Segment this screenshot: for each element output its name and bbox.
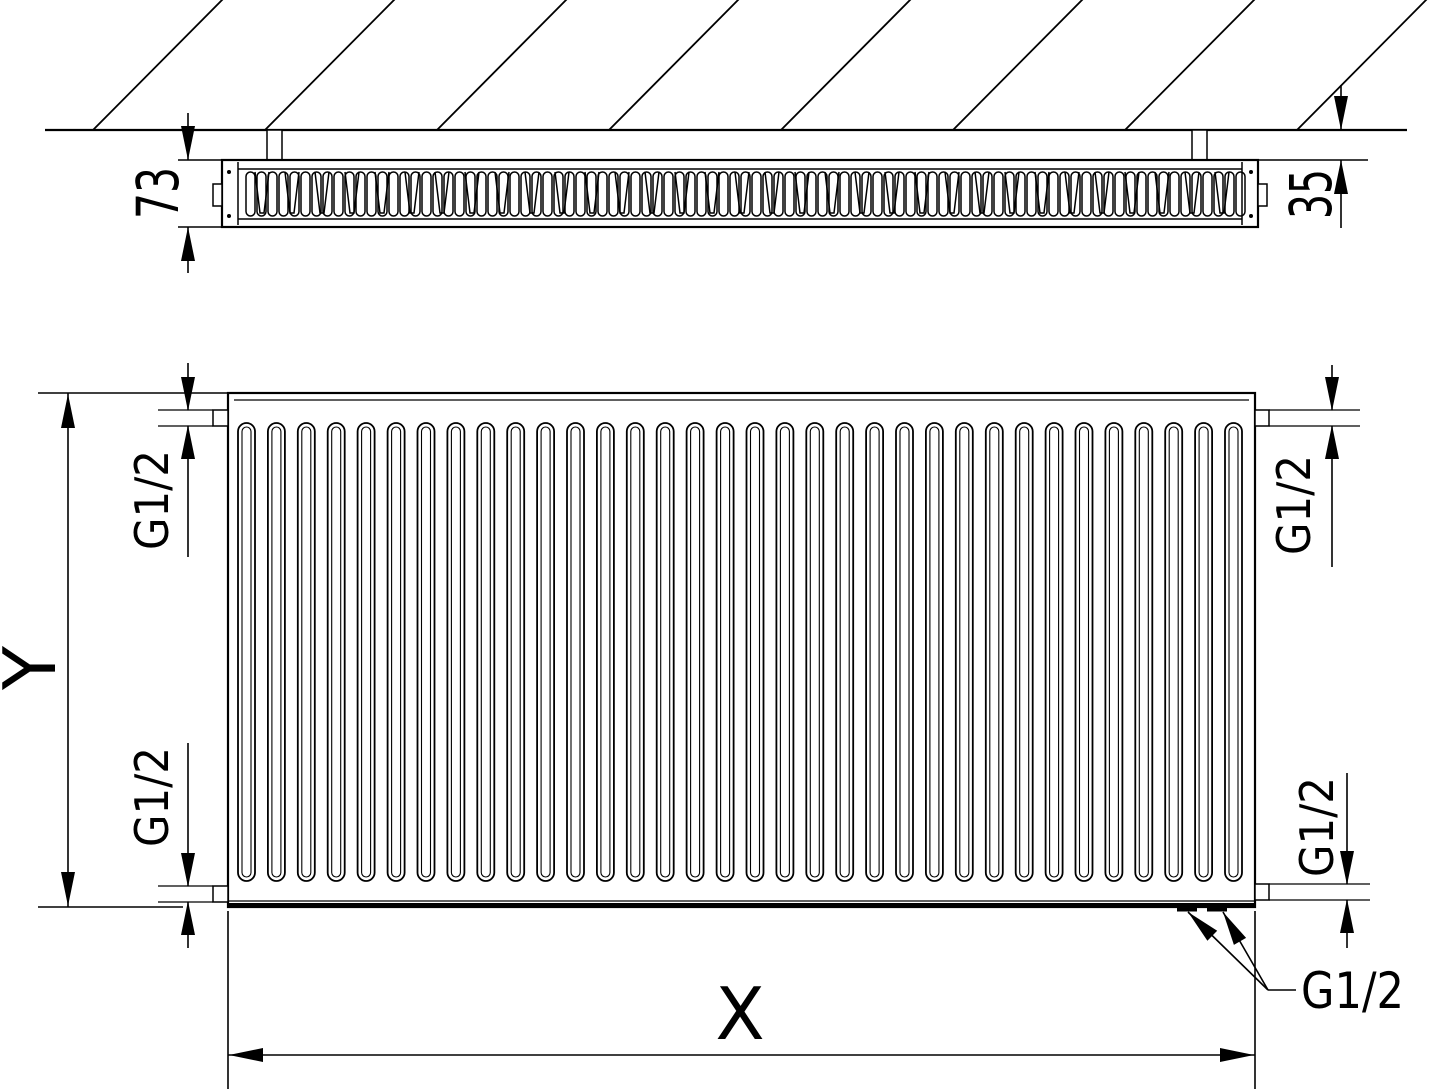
screw-dot xyxy=(227,170,231,174)
dimension-arrow xyxy=(181,425,195,459)
depth-value: 73 xyxy=(124,167,192,219)
dimension-depth: 73 xyxy=(124,113,222,273)
dimension-conn-top-left: G1/2 xyxy=(125,363,188,557)
drawing-canvas: 73 35 Y xyxy=(0,0,1429,1091)
conn-bottom-right-value: G1/2 xyxy=(1290,777,1344,877)
width-value: X xyxy=(715,972,764,1056)
top-view xyxy=(213,130,1267,227)
screw-dot xyxy=(1249,214,1253,218)
conn-leader-value: G1/2 xyxy=(1301,962,1404,1020)
wall-hatch-line xyxy=(953,0,1084,130)
stub-bottom-right xyxy=(1255,884,1269,900)
wall-hatch-line xyxy=(1297,0,1428,130)
dimension-conn-top-right: G1/2 xyxy=(1267,365,1332,567)
stub-top-right xyxy=(1255,410,1269,426)
wall-hatch-line xyxy=(781,0,912,130)
wall-bracket-left xyxy=(267,130,282,162)
dimension-arrow xyxy=(1325,377,1339,411)
top-view-right-plug xyxy=(1258,184,1267,206)
wall-hatch-line xyxy=(437,0,568,130)
dimension-arrow xyxy=(1220,1048,1254,1062)
dimension-arrow xyxy=(61,872,75,906)
dimension-height: Y xyxy=(0,393,233,907)
dimension-wall-gap: 35 xyxy=(1258,85,1368,228)
dimension-width: X xyxy=(228,911,1255,1089)
dimension-arrow xyxy=(1340,899,1354,933)
stub-top-left xyxy=(213,410,228,426)
dimension-arrow xyxy=(181,227,195,261)
front-view-body xyxy=(228,393,1255,907)
dimension-arrow xyxy=(1334,96,1348,130)
wall-hatch-line xyxy=(265,0,396,130)
wall-hatch-line xyxy=(93,0,224,130)
dimension-conn-bottom-left: G1/2 xyxy=(125,743,188,948)
leader-conn-bottom: G1/2 xyxy=(1188,912,1404,1020)
height-value: Y xyxy=(0,645,72,691)
dimension-arrow xyxy=(1223,912,1246,945)
dimension-conn-bottom-right: G1/2 xyxy=(1290,773,1347,948)
dimension-arrow xyxy=(181,377,195,411)
wall-hatch-line xyxy=(609,0,740,130)
screw-dot xyxy=(227,214,231,218)
wall-hatching xyxy=(93,0,1428,130)
front-view xyxy=(158,393,1370,909)
dimension-arrow xyxy=(181,853,195,887)
stub-bottom-left xyxy=(213,886,228,902)
top-view-left-plug xyxy=(213,184,222,206)
dimension-arrow xyxy=(229,1048,263,1062)
radiator-technical-drawing: 73 35 Y xyxy=(0,0,1429,1091)
conn-bottom-left-value: G1/2 xyxy=(125,747,179,847)
dimension-arrow xyxy=(61,394,75,428)
wall-bracket-right xyxy=(1192,130,1207,162)
dimension-arrow xyxy=(1325,425,1339,459)
wall-section xyxy=(45,0,1428,130)
screw-dot xyxy=(1249,170,1253,174)
wall-hatch-line xyxy=(1125,0,1256,130)
conn-top-right-value: G1/2 xyxy=(1267,455,1321,555)
dimension-arrow xyxy=(181,901,195,935)
conn-top-left-value: G1/2 xyxy=(125,450,179,550)
dimension-arrow xyxy=(181,126,195,160)
